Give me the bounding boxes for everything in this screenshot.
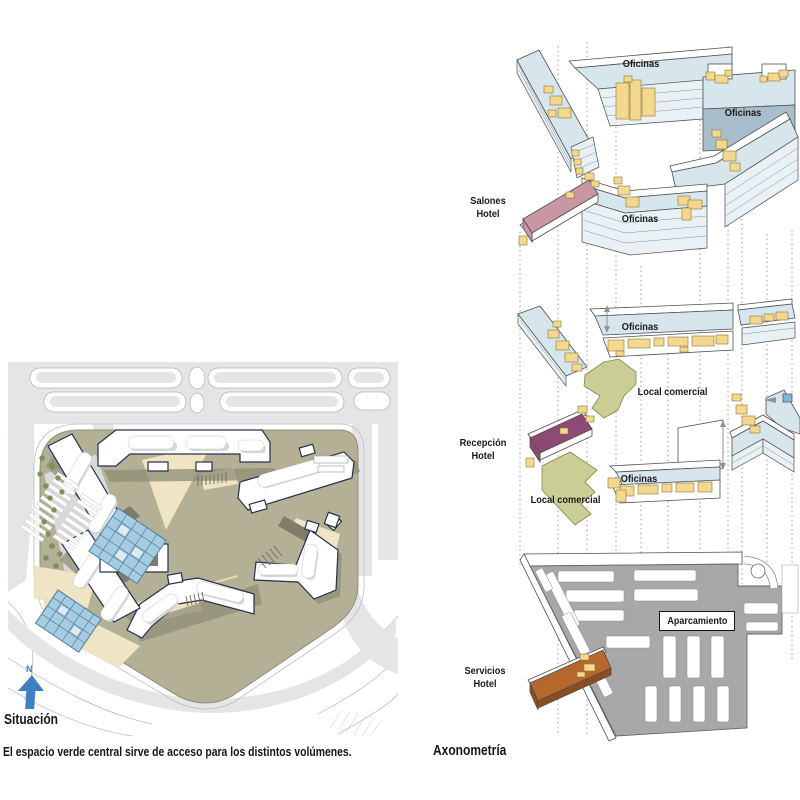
label-servicios-hotel: Servicios Hotel [452, 665, 519, 691]
label-servicios-line1: Servicios [452, 665, 519, 678]
label-local-comercial-bottom: Local comercial [524, 494, 608, 507]
label-oficinas-roof-top: Oficinas [610, 58, 672, 71]
architecture-sheet: Oficinas Oficinas Salones Hotel Oficinas… [0, 0, 800, 800]
site-plan-drawing [0, 358, 400, 738]
label-servicios-line2: Hotel [452, 678, 519, 691]
label-salones-line2: Hotel [455, 208, 522, 221]
label-salones-hotel: Salones Hotel [455, 195, 522, 221]
label-recepcion-line1: Recepción [450, 437, 517, 450]
label-local-comercial-right: Local comercial [631, 386, 715, 399]
situacion-title: Situación [4, 711, 58, 728]
north-arrow: N [16, 666, 52, 716]
label-oficinas-mid-top: Oficinas [609, 321, 671, 334]
label-recepcion-line2: Hotel [450, 450, 517, 463]
label-aparcamiento: Aparcamiento [659, 611, 735, 631]
north-label: N [26, 664, 33, 674]
label-recepcion-hotel: Recepción Hotel [450, 437, 517, 463]
axonometria-title: Axonometría [433, 742, 506, 759]
situacion-caption: El espacio verde central sirve de acceso… [3, 744, 352, 759]
label-salones-line1: Salones [455, 195, 522, 208]
label-oficinas-mid-bottom: Oficinas [608, 473, 670, 486]
axonometric-drawing [420, 20, 800, 745]
label-oficinas-roof-right: Oficinas [711, 107, 774, 120]
north-arrow-icon [16, 674, 52, 714]
axonometric-level-parking [520, 552, 798, 741]
label-oficinas-roof-bottom: Oficinas [609, 213, 671, 226]
label-aparcamiento-text: Aparcamiento [667, 616, 727, 627]
